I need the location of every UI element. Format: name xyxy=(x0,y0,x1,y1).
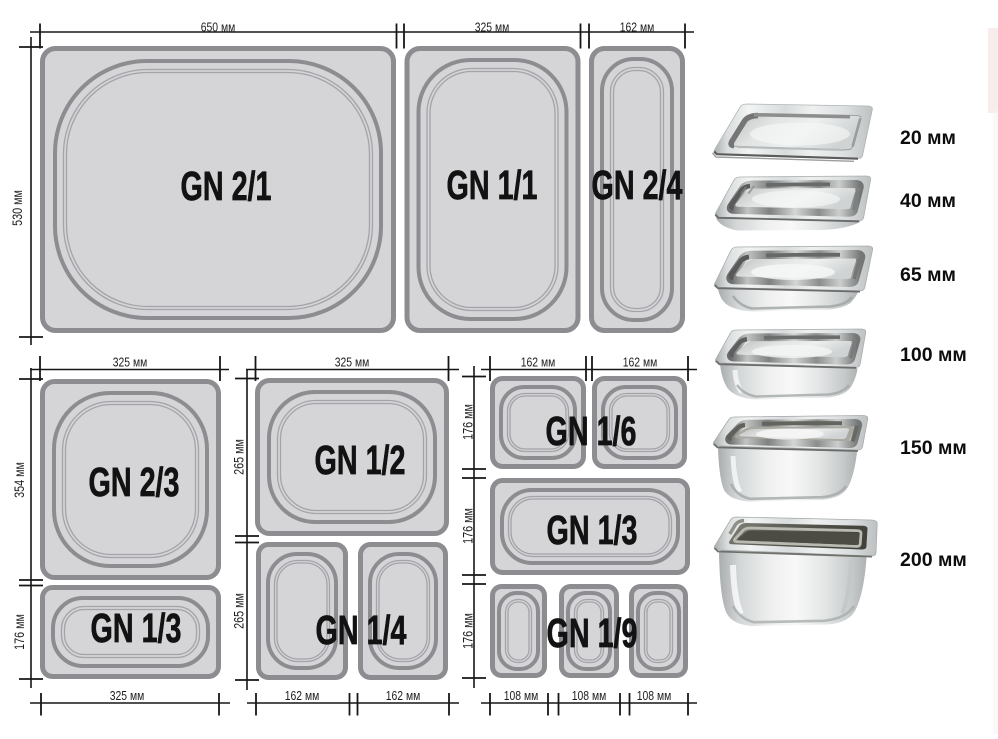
svg-text:265 мм: 265 мм xyxy=(231,593,246,629)
svg-text:176 мм: 176 мм xyxy=(12,614,27,650)
svg-text:65 мм: 65 мм xyxy=(900,264,956,286)
svg-text:176 мм: 176 мм xyxy=(460,404,475,440)
svg-text:325 мм: 325 мм xyxy=(475,20,510,34)
svg-text:176 мм: 176 мм xyxy=(460,508,475,544)
svg-text:GN 1/9: GN 1/9 xyxy=(547,611,638,656)
svg-text:100 мм: 100 мм xyxy=(900,344,967,366)
svg-text:162 мм: 162 мм xyxy=(623,355,658,369)
svg-text:325 мм: 325 мм xyxy=(335,355,370,369)
svg-text:GN 2/1: GN 2/1 xyxy=(181,164,272,209)
svg-text:40 мм: 40 мм xyxy=(900,190,956,212)
svg-text:108 мм: 108 мм xyxy=(637,689,672,703)
svg-text:162 мм: 162 мм xyxy=(620,20,655,34)
svg-text:354 мм: 354 мм xyxy=(12,462,27,498)
svg-text:GN 1/3: GN 1/3 xyxy=(91,606,182,651)
svg-text:GN 1/3: GN 1/3 xyxy=(547,508,638,553)
svg-text:650 мм: 650 мм xyxy=(201,20,236,34)
svg-text:162 мм: 162 мм xyxy=(521,355,556,369)
svg-text:GN 1/4: GN 1/4 xyxy=(316,608,407,653)
svg-text:GN 2/3: GN 2/3 xyxy=(89,460,180,505)
svg-text:108 мм: 108 мм xyxy=(504,689,539,703)
svg-text:GN 1/6: GN 1/6 xyxy=(546,409,637,454)
svg-text:325 мм: 325 мм xyxy=(113,355,148,369)
svg-text:325 мм: 325 мм xyxy=(110,689,145,703)
svg-text:162 мм: 162 мм xyxy=(386,689,421,703)
svg-text:GN 2/4: GN 2/4 xyxy=(592,163,683,208)
svg-text:150 мм: 150 мм xyxy=(900,437,967,459)
svg-text:108 мм: 108 мм xyxy=(572,689,607,703)
svg-text:GN 1/1: GN 1/1 xyxy=(447,163,538,208)
svg-text:200 мм: 200 мм xyxy=(900,549,967,571)
svg-text:20 мм: 20 мм xyxy=(900,127,956,149)
svg-text:176 мм: 176 мм xyxy=(460,613,475,649)
svg-text:162 мм: 162 мм xyxy=(285,689,320,703)
svg-text:GN 1/2: GN 1/2 xyxy=(315,438,406,483)
svg-text:265 мм: 265 мм xyxy=(231,439,246,475)
svg-text:530 мм: 530 мм xyxy=(10,190,25,226)
